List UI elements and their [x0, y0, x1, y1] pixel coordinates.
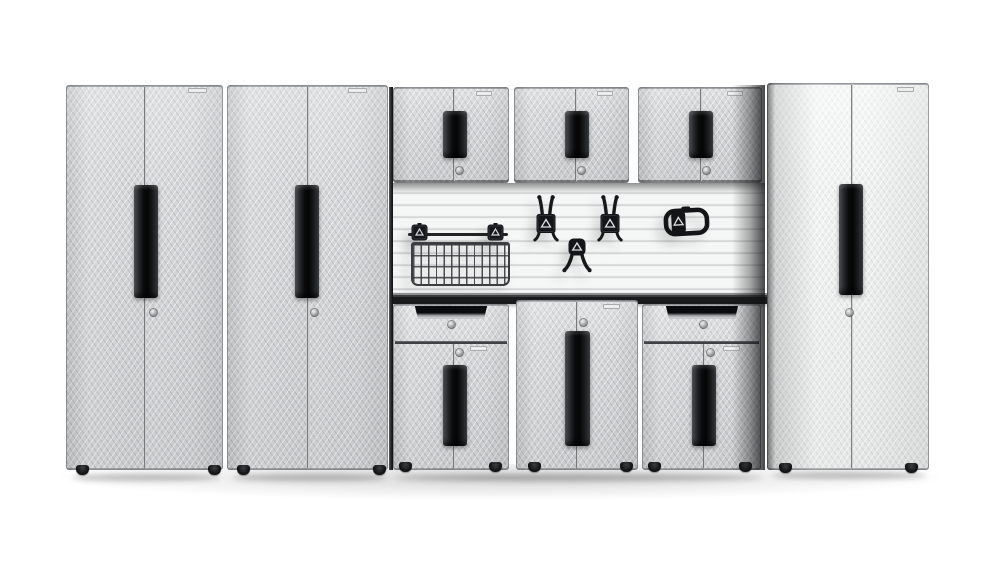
drawer-door-seam [644, 341, 759, 344]
door-handle [443, 365, 467, 446]
door-handle [134, 185, 158, 298]
ground-shadow [232, 474, 386, 481]
wall-cabinet-undershadow [393, 183, 765, 193]
door-handle [689, 111, 713, 158]
door-handle [565, 331, 590, 446]
twin-prong-hook-left [533, 194, 559, 247]
nameplate [597, 91, 613, 96]
lock-cylinder [846, 309, 853, 316]
curved-down-hook [561, 237, 593, 278]
wall-gearbox-left [393, 87, 509, 183]
slatwall-bracket-left [411, 223, 428, 241]
drawer-lock [700, 321, 707, 328]
nameplate [188, 88, 207, 93]
ground-shadow [395, 474, 763, 481]
door-handle [565, 111, 589, 158]
lock-cylinder [456, 167, 463, 174]
nameplate [470, 346, 487, 351]
middle-bay-left-edge [389, 87, 393, 470]
door-handle [295, 185, 319, 298]
door-lock [707, 349, 714, 356]
bracket-icon [487, 223, 504, 241]
drawer-base-cabinet-left [393, 304, 509, 470]
double-prong-hook-icon [533, 194, 559, 242]
tall-gear-locker-left [227, 85, 388, 470]
lock-cylinder [578, 167, 585, 174]
double-prong-hook-icon [597, 194, 623, 242]
tall-gear-locker-far-left [66, 85, 223, 470]
garage-storage-system-photo [0, 0, 1000, 562]
down-hook-icon [561, 237, 593, 273]
lock-cylinder [150, 309, 157, 316]
center-gearbox-cabinet [516, 300, 638, 470]
wire-basket [411, 242, 510, 286]
door-lock [580, 319, 587, 326]
wall-gearbox-right [638, 87, 762, 183]
nameplate [476, 91, 492, 96]
drawer-door-seam [395, 341, 507, 344]
nameplate [727, 91, 743, 96]
drawer-pull [664, 306, 740, 319]
nameplate [348, 88, 367, 93]
nameplate [723, 346, 740, 351]
door-lock [456, 349, 463, 356]
drawer-pull [413, 306, 489, 319]
twin-prong-hook-right [597, 194, 623, 247]
nameplate [897, 87, 914, 92]
wall-gearbox-center [514, 87, 629, 183]
bracket-icon [411, 223, 428, 241]
ground-shadow [772, 472, 927, 479]
drawer-base-cabinet-right [642, 304, 761, 470]
door-handle [692, 365, 716, 446]
loop-handle-hook [662, 205, 710, 244]
tall-gear-locker-right [767, 83, 929, 470]
door-handle [839, 184, 863, 295]
door-handle [443, 111, 467, 158]
lock-cylinder [311, 309, 318, 316]
loop-hook-icon [662, 205, 710, 239]
ground-shadow [72, 474, 220, 481]
drawer-lock [448, 321, 455, 328]
nameplate [603, 304, 620, 309]
slatwall-bracket-right [487, 223, 504, 241]
lock-cylinder [703, 167, 710, 174]
